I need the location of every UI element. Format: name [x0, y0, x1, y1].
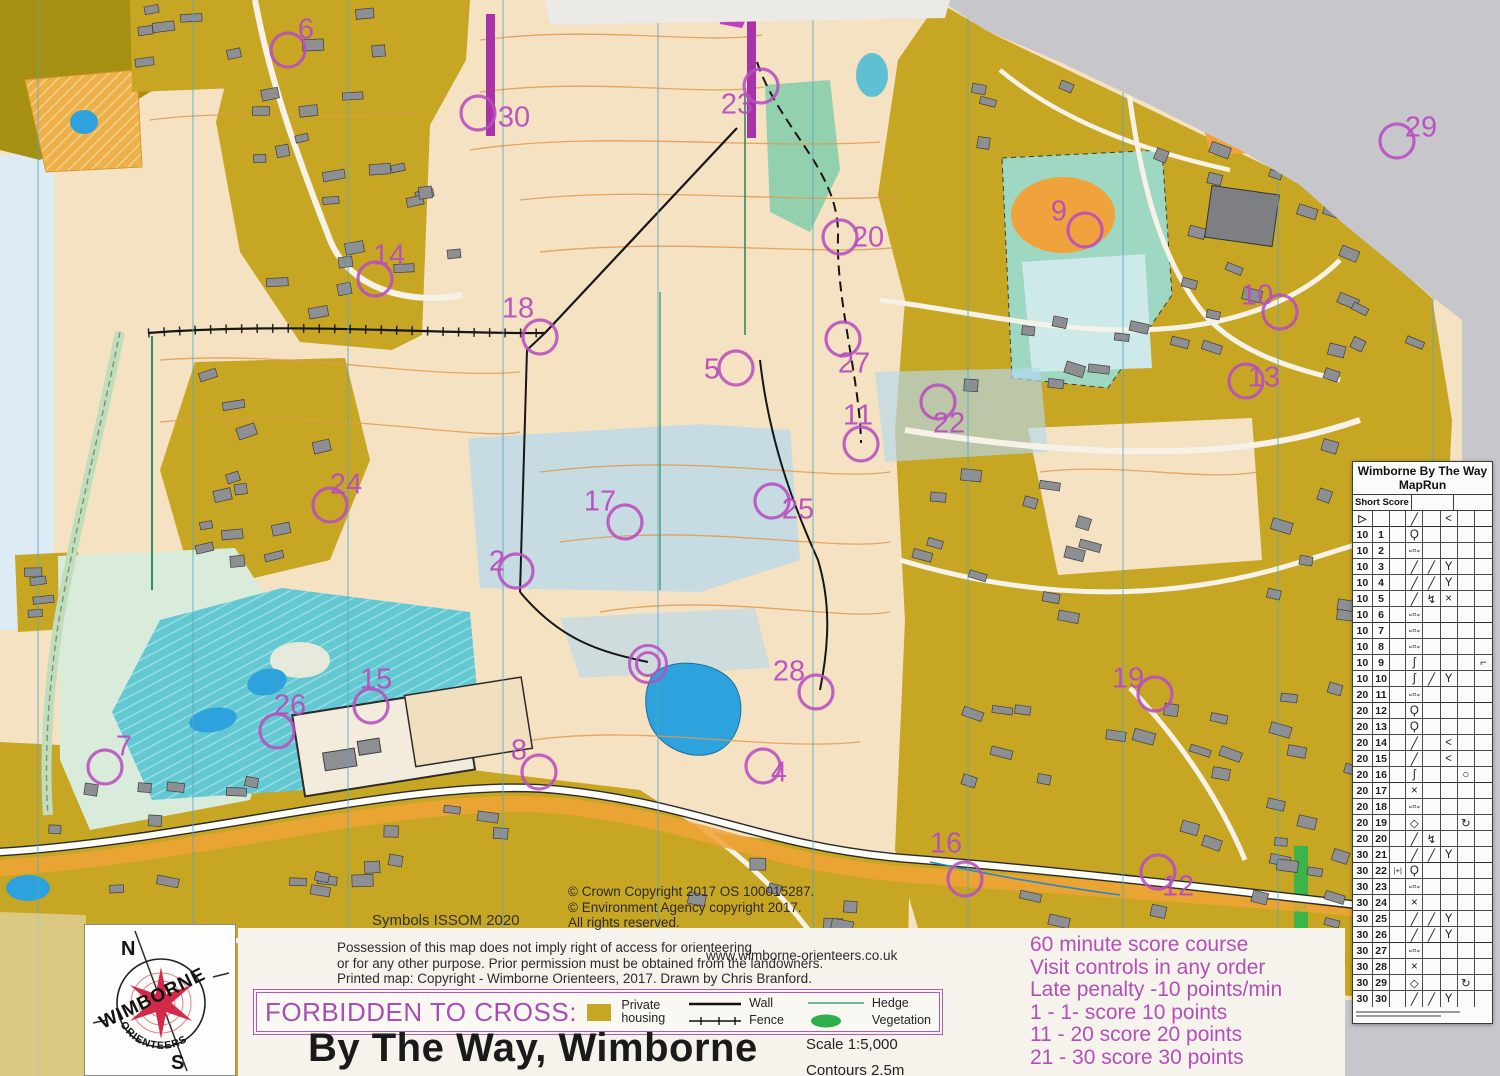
descriptor-cell: [1475, 959, 1492, 974]
descriptor-cell: [1423, 735, 1440, 750]
descriptor-row: 102-▫-: [1353, 543, 1492, 559]
descriptor-cell: [1441, 543, 1458, 558]
descriptor-cell: [1390, 687, 1406, 702]
compass-rose-icon: N S WIMBORNE ORIENTEERS: [85, 925, 235, 1075]
descriptor-cell: 16: [1373, 767, 1391, 782]
descriptor-cell: 17: [1373, 783, 1391, 798]
descriptor-cell: [1475, 607, 1492, 622]
control-number: 16: [930, 828, 962, 860]
descriptor-row: 2020╱↯: [1353, 831, 1492, 847]
descriptor-cell: [1458, 751, 1475, 766]
descriptor-row: 2014╱<: [1353, 735, 1492, 751]
descriptor-cell: [1390, 639, 1406, 654]
building: [138, 25, 154, 35]
building: [1037, 774, 1051, 786]
descriptor-cell: -▫-: [1406, 639, 1423, 654]
descriptor-row: 2011-▫-: [1353, 687, 1492, 703]
descriptor-row: 107-▫-: [1353, 623, 1492, 639]
descriptor-cell: 20: [1353, 735, 1373, 750]
descriptor-cell: 10: [1353, 591, 1373, 606]
control-number: 12: [1162, 871, 1194, 903]
descriptor-cell: 21: [1373, 847, 1391, 862]
descriptor-cell: 30: [1353, 847, 1373, 862]
descriptor-cell: [1475, 783, 1492, 798]
control-number: 9: [1051, 196, 1067, 228]
hedge-label: Hedge: [872, 997, 909, 1010]
wall-line-icon: [689, 1001, 741, 1007]
descriptor-cell: [1458, 511, 1475, 526]
descriptor-cell: ×: [1441, 591, 1458, 606]
descriptor-row: 108-▫-: [1353, 639, 1492, 655]
descriptor-cell: <: [1441, 735, 1458, 750]
descriptor-cell: [1458, 863, 1475, 878]
building: [1276, 859, 1298, 873]
fence-line-icon: [689, 1017, 741, 1025]
descriptor-cell: [1475, 815, 1492, 830]
descriptor-cell: [1475, 847, 1492, 862]
control-number: 24: [330, 469, 362, 501]
descriptor-cell: [1423, 687, 1440, 702]
control-number: 30: [498, 102, 530, 134]
descriptor-cell: 27: [1373, 943, 1391, 958]
descriptor-row: 3027-▫-: [1353, 943, 1492, 959]
descriptor-cell: 30: [1353, 895, 1373, 910]
descriptor-cell: [1441, 799, 1458, 814]
descriptor-cell: [1475, 671, 1492, 686]
control-number: 18: [502, 293, 534, 325]
control-number: 22: [933, 408, 965, 440]
score-rule-line: 11 - 20 score 20 points: [1030, 1024, 1282, 1047]
building: [226, 787, 246, 796]
descriptor-cell: [1458, 927, 1475, 942]
logo-south: S: [171, 1052, 184, 1074]
descriptor-cell: ○: [1458, 767, 1475, 782]
descriptor-cell: 30: [1353, 911, 1373, 926]
descriptor-cell: 15: [1373, 751, 1391, 766]
descriptor-cell: [1423, 639, 1440, 654]
descriptor-cell: <: [1441, 751, 1458, 766]
descriptor-row: 3030╱╱Y: [1353, 991, 1492, 1007]
descriptor-cell: ▷: [1353, 511, 1373, 526]
descriptor-cell: [1390, 959, 1406, 974]
descriptor-cell: Y: [1441, 671, 1458, 686]
large-building: [1205, 186, 1280, 247]
map-photo: 6302320141852729910131122241725215262819…: [0, 0, 1500, 1076]
descriptor-row: 3022|+|Ϙ: [1353, 863, 1492, 879]
descriptor-row: 106-▫-: [1353, 607, 1492, 623]
control-number: 5: [704, 354, 720, 386]
descriptor-cell: [1423, 751, 1440, 766]
descriptor-cell: 20: [1353, 751, 1373, 766]
control-number: 6: [298, 14, 314, 46]
legend-text: Private: [621, 998, 660, 1012]
descriptor-cell: [1475, 831, 1492, 846]
control-description-sheet: Wimborne By The Way MapRun Short Score ▷…: [1352, 461, 1493, 1024]
descriptor-cell: ⌐: [1475, 655, 1492, 670]
descriptor-cell: [1475, 895, 1492, 910]
descriptor-cell: [1475, 943, 1492, 958]
descriptor-row: 3021╱╱Y: [1353, 847, 1492, 863]
descriptor-cell: 10: [1353, 527, 1373, 542]
descriptor-cell: [1423, 959, 1440, 974]
descriptor-cell: ╱: [1423, 911, 1440, 926]
building: [180, 13, 202, 22]
descriptor-row: 2017×: [1353, 783, 1492, 799]
descriptor-cell: [1390, 575, 1406, 590]
copyright-line: © Environment Agency copyright 2017.: [568, 900, 814, 916]
descriptor-cell: [1423, 655, 1440, 670]
scale-label: Scale 1:5,000: [806, 1032, 904, 1058]
descriptor-row: 3029◇↻: [1353, 975, 1492, 991]
descriptor-cell: 20: [1353, 799, 1373, 814]
descriptor-cell: [1390, 879, 1406, 894]
descriptor-cell: [1390, 767, 1406, 782]
control-number: 29: [1405, 112, 1437, 144]
descriptor-cell: 30: [1373, 991, 1391, 1007]
descriptor-cell: 1: [1373, 527, 1391, 542]
descriptor-cell: ↻: [1458, 975, 1475, 990]
descriptor-cell: [1475, 639, 1492, 654]
descriptor-row: 3024×: [1353, 895, 1492, 911]
descriptor-cell: [1458, 527, 1475, 542]
descriptor-cell: [1475, 991, 1492, 1007]
descriptor-cell: [1423, 815, 1440, 830]
sheet-subheader-cell: [1454, 495, 1492, 510]
descriptor-cell: ╱: [1423, 671, 1440, 686]
descriptor-cell: ╱: [1423, 559, 1440, 574]
descriptor-cell: [1390, 975, 1406, 990]
control-number: 15: [360, 664, 392, 696]
building: [28, 609, 42, 617]
descriptor-cell: [1475, 879, 1492, 894]
descriptor-cell: [1390, 623, 1406, 638]
building: [338, 256, 353, 268]
descriptor-cell: ʃ: [1406, 655, 1423, 670]
descriptor-cell: [1458, 911, 1475, 926]
descriptor-cell: 10: [1353, 559, 1373, 574]
descriptor-cell: [1441, 623, 1458, 638]
sheet-title: Wimborne By The Way MapRun: [1353, 462, 1492, 495]
building: [843, 901, 857, 913]
forbidden-label: FORBIDDEN TO CROSS:: [265, 997, 577, 1028]
building: [750, 858, 766, 870]
descriptor-cell: [1475, 767, 1492, 782]
building: [372, 45, 386, 57]
control-number: 8: [511, 735, 527, 767]
descriptor-cell: [1441, 703, 1458, 718]
descriptor-cell: -▫-: [1406, 879, 1423, 894]
building: [961, 469, 982, 482]
sheet-title-line1: Wimborne By The Way: [1358, 464, 1487, 478]
building: [355, 8, 374, 19]
vegetation-label: Vegetation: [872, 1014, 931, 1027]
descriptor-cell: [1390, 991, 1406, 1007]
descriptor-cell: [1458, 607, 1475, 622]
control-number: 10: [1241, 280, 1273, 312]
descriptor-cell: [1475, 575, 1492, 590]
private-housing-swatch: [587, 1004, 611, 1021]
building: [342, 92, 363, 101]
control-number: 2: [489, 546, 505, 578]
descriptor-cell: 20: [1353, 815, 1373, 830]
descriptor-cell: [1390, 591, 1406, 606]
descriptor-row: 2016ʃ○: [1353, 767, 1492, 783]
sheet-subheader: Short Score: [1353, 495, 1412, 510]
logo-north: N: [121, 938, 135, 960]
scale-block: Scale 1:5,000 Contours 2.5m: [806, 1032, 904, 1076]
descriptor-cell: ╱: [1406, 511, 1423, 526]
descriptor-cell: [1458, 879, 1475, 894]
symbols-note: Symbols ISSOM 2020: [372, 912, 520, 929]
descriptor-cell: 13: [1373, 719, 1391, 734]
descriptor-cell: [1475, 543, 1492, 558]
descriptor-cell: [1458, 559, 1475, 574]
descriptor-cell: 4: [1373, 575, 1391, 590]
descriptor-cell: [1423, 511, 1440, 526]
vegetation-icon: [808, 1014, 864, 1028]
descriptor-cell: [1423, 895, 1440, 910]
building: [25, 568, 42, 577]
descriptor-cell: [1423, 943, 1440, 958]
descriptor-cell: -▫-: [1406, 623, 1423, 638]
descriptor-cell: ╱: [1406, 847, 1423, 862]
descriptor-cell: [1390, 783, 1406, 798]
descriptor-cell: 20: [1353, 767, 1373, 782]
descriptor-cell: 30: [1353, 959, 1373, 974]
descriptor-cell: <: [1441, 511, 1458, 526]
control-number: 4: [771, 757, 787, 789]
descriptor-cell: ╱: [1406, 751, 1423, 766]
descriptor-row: 109ʃ⌐: [1353, 655, 1492, 671]
building: [418, 186, 432, 199]
descriptor-cell: 10: [1353, 575, 1373, 590]
building: [254, 155, 266, 163]
website-url: www.wimborne-orienteers.co.uk: [706, 948, 897, 963]
score-rule-line: 21 - 30 score 30 points: [1030, 1047, 1282, 1070]
descriptor-cell: ╱: [1423, 991, 1440, 1007]
descriptor-cell: [1441, 815, 1458, 830]
descriptor-cell: |+|: [1390, 863, 1406, 878]
descriptor-cell: 20: [1353, 831, 1373, 846]
descriptor-cell: [1423, 703, 1440, 718]
descriptor-cell: [1441, 607, 1458, 622]
descriptor-cell: Y: [1441, 927, 1458, 942]
descriptor-cell: 20: [1353, 687, 1373, 702]
descriptor-cell: [1441, 831, 1458, 846]
building: [110, 885, 124, 893]
descriptor-cell: [1390, 911, 1406, 926]
descriptor-cell: 10: [1353, 639, 1373, 654]
descriptor-cell: ╱: [1406, 735, 1423, 750]
descriptor-cell: [1423, 527, 1440, 542]
descriptor-cell: ×: [1406, 783, 1423, 798]
descriptor-cell: ×: [1406, 959, 1423, 974]
descriptor-cell: 11: [1373, 687, 1391, 702]
descriptor-cell: [1390, 799, 1406, 814]
descriptor-cell: 12: [1373, 703, 1391, 718]
descriptor-cell: 20: [1353, 719, 1373, 734]
descriptor-cell: [1458, 703, 1475, 718]
building: [167, 782, 185, 793]
descriptor-row: 105╱↯×: [1353, 591, 1492, 607]
disclaimer-line: Printed map: Copyright - Wimborne Orient…: [337, 971, 823, 987]
descriptor-cell: [1390, 943, 1406, 958]
descriptor-cell: 26: [1373, 927, 1391, 942]
descriptor-cell: 20: [1373, 831, 1391, 846]
building: [266, 277, 288, 286]
descriptor-cell: [1458, 783, 1475, 798]
descriptor-cell: [1458, 943, 1475, 958]
descriptor-row: 2013Ϙ: [1353, 719, 1492, 735]
building: [1048, 378, 1064, 389]
descriptor-cell: 10: [1353, 543, 1373, 558]
descriptor-cell: [1475, 719, 1492, 734]
descriptor-cell: ʃ: [1406, 767, 1423, 782]
building: [352, 874, 374, 887]
descriptor-cell: [1475, 927, 1492, 942]
footnote-line: [1356, 1015, 1441, 1018]
building: [1014, 705, 1031, 716]
building: [323, 196, 340, 204]
descriptor-cell: [1475, 527, 1492, 542]
descriptor-cell: [1475, 975, 1492, 990]
copyright-line: All rights reserved.: [568, 915, 814, 931]
descriptor-cell: [1441, 687, 1458, 702]
descriptor-cell: 7: [1373, 623, 1391, 638]
descriptor-cell: [1441, 975, 1458, 990]
descriptor-row: 2012Ϙ: [1353, 703, 1492, 719]
descriptor-cell: 30: [1353, 863, 1373, 878]
descriptor-cell: [1390, 831, 1406, 846]
descriptor-row: 3026╱╱Y: [1353, 927, 1492, 943]
descriptor-cell: [1475, 559, 1492, 574]
descriptor-cell: ↯: [1423, 831, 1440, 846]
descriptor-cell: 20: [1353, 703, 1373, 718]
descriptor-cell: [1458, 991, 1475, 1007]
descriptor-cell: [1441, 767, 1458, 782]
descriptor-cell: 23: [1373, 879, 1391, 894]
descriptor-cell: ʃ: [1406, 671, 1423, 686]
building: [337, 282, 352, 296]
descriptor-row: 3025╱╱Y: [1353, 911, 1492, 927]
descriptor-cell: [1423, 767, 1440, 782]
descriptor-cell: 14: [1373, 735, 1391, 750]
building: [447, 249, 461, 259]
descriptor-cell: [1390, 559, 1406, 574]
descriptor-row: 3023-▫-: [1353, 879, 1492, 895]
descriptor-cell: Ϙ: [1406, 527, 1423, 542]
descriptor-row: 104╱╱Y: [1353, 575, 1492, 591]
descriptor-cell: ◇: [1406, 975, 1423, 990]
building: [1307, 867, 1323, 877]
control-number: 25: [782, 494, 814, 526]
building: [388, 854, 403, 867]
descriptor-cell: -▫-: [1406, 687, 1423, 702]
descriptor-cell: [1441, 719, 1458, 734]
building: [138, 783, 152, 793]
descriptor-cell: Ϙ: [1406, 863, 1423, 878]
descriptor-cell: 25: [1373, 911, 1391, 926]
descriptor-cell: [1475, 623, 1492, 638]
descriptor-cell: 24: [1373, 895, 1391, 910]
descriptor-cell: 10: [1353, 607, 1373, 622]
descriptor-cell: [1390, 511, 1406, 526]
descriptor-cell: 3: [1373, 559, 1391, 574]
descriptor-row: 2015╱<: [1353, 751, 1492, 767]
building: [49, 825, 61, 834]
descriptor-cell: Y: [1441, 847, 1458, 862]
building: [221, 529, 243, 540]
descriptor-cell: ↻: [1458, 815, 1475, 830]
descriptor-cell: [1458, 959, 1475, 974]
descriptor-cell: 22: [1373, 863, 1391, 878]
copyright-block: © Crown Copyright 2017 OS 100015287. © E…: [568, 884, 814, 931]
descriptor-cell: [1441, 959, 1458, 974]
control-number: 23: [721, 89, 753, 121]
descriptor-cell: [1458, 847, 1475, 862]
descriptor-cell: [1475, 735, 1492, 750]
score-rule-line: Late penalty -10 points/min: [1030, 979, 1282, 1002]
building: [299, 105, 318, 118]
descriptor-row: 101Ϙ: [1353, 527, 1492, 543]
hedge-line-icon: [808, 1000, 864, 1006]
sheet-subheader-row: Short Score: [1353, 495, 1492, 511]
descriptor-cell: [1423, 607, 1440, 622]
descriptor-row: 2018-▫-: [1353, 799, 1492, 815]
descriptor-cell: ╱: [1406, 575, 1423, 590]
control-number: 11: [843, 400, 873, 432]
control-number: 19: [1112, 663, 1144, 695]
descriptor-row: ▷╱<: [1353, 511, 1492, 527]
descriptor-cell: [1423, 543, 1440, 558]
descriptor-cell: ╱: [1406, 559, 1423, 574]
footnote-line: [1356, 1011, 1460, 1014]
pond-small: [6, 875, 50, 901]
descriptor-cell: ◇: [1406, 815, 1423, 830]
score-rule-line: 60 minute score course: [1030, 934, 1282, 957]
score-rule-line: 1 - 1- score 10 points: [1030, 1002, 1282, 1025]
descriptor-cell: -▫-: [1406, 543, 1423, 558]
descriptor-cell: [1423, 783, 1440, 798]
descriptor-cell: ╱: [1406, 911, 1423, 926]
descriptor-row: 1010ʃ╱Y: [1353, 671, 1492, 687]
building: [1212, 767, 1231, 781]
building: [930, 492, 946, 502]
building: [275, 144, 290, 158]
descriptor-cell: [1423, 863, 1440, 878]
descriptor-row: 2019◇↻: [1353, 815, 1492, 831]
copyright-line: © Crown Copyright 2017 OS 100015287.: [568, 884, 814, 900]
descriptor-cell: [1458, 655, 1475, 670]
control-number: 28: [773, 656, 805, 688]
descriptor-cell: [1458, 543, 1475, 558]
descriptor-cell: [1423, 623, 1440, 638]
descriptor-cell: 10: [1353, 655, 1373, 670]
descriptor-cell: [1423, 719, 1440, 734]
building: [234, 483, 247, 495]
building: [964, 379, 979, 392]
sheet-rows: ▷╱<101Ϙ102-▫-103╱╱Y104╱╱Y105╱↯×106-▫-107…: [1353, 511, 1492, 1007]
descriptor-cell: [1441, 943, 1458, 958]
descriptor-cell: [1458, 719, 1475, 734]
club-logo: N S WIMBORNE ORIENTEERS: [84, 924, 236, 1076]
building: [290, 878, 307, 886]
building: [84, 783, 99, 796]
descriptor-cell: 30: [1353, 879, 1373, 894]
building: [230, 555, 245, 567]
descriptor-cell: [1390, 895, 1406, 910]
descriptor-cell: 30: [1353, 975, 1373, 990]
